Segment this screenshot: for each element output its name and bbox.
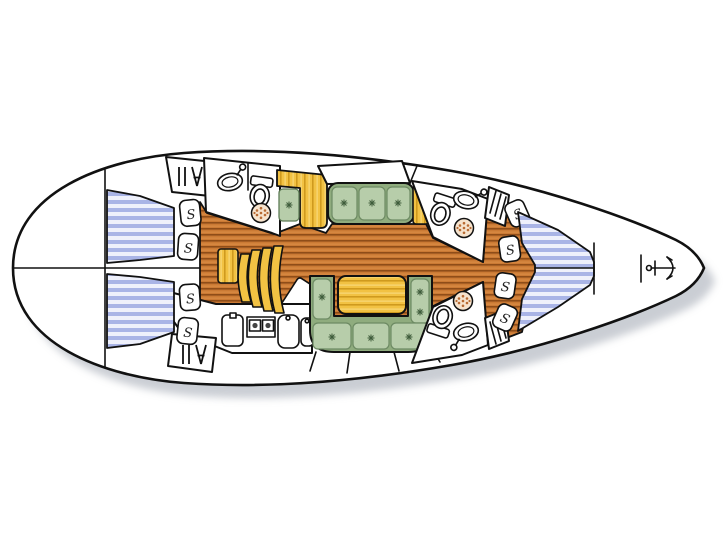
cushion-tuft xyxy=(369,200,376,207)
shelf-locker: S xyxy=(177,233,199,260)
cushion-tuft xyxy=(417,289,424,296)
faucet xyxy=(286,316,290,320)
shelf-locker: S xyxy=(498,235,521,263)
shelf-locker: S xyxy=(176,317,199,345)
shower-drain xyxy=(454,292,473,311)
burner xyxy=(265,323,270,328)
stove xyxy=(247,317,275,337)
svg-text:S: S xyxy=(186,207,197,223)
cushion-tuft xyxy=(329,334,336,341)
cushion-tuft xyxy=(395,200,402,207)
shower-drain xyxy=(455,219,474,238)
svg-text:S: S xyxy=(186,292,196,308)
u-settee xyxy=(310,276,432,352)
fridge-latch xyxy=(230,313,236,318)
settee-back-shelf xyxy=(318,161,410,184)
cushion-tuft xyxy=(319,294,326,301)
yacht-floor-plan: Sailing yacht interior layout plan (bow … xyxy=(0,0,727,544)
cushion-tuft xyxy=(341,200,348,207)
cushion-tuft xyxy=(406,334,413,341)
svg-text:S: S xyxy=(183,241,193,257)
shelf-locker: S xyxy=(494,272,517,300)
settee-cushion xyxy=(411,279,429,323)
floor-plan-canvas: S S S S xyxy=(0,0,727,544)
step-landing xyxy=(218,249,238,283)
shelf-locker: S xyxy=(179,284,201,311)
cushion-tuft xyxy=(286,202,293,209)
shower-drain xyxy=(252,204,271,223)
salon-table xyxy=(338,276,406,314)
cushion-tuft xyxy=(417,309,424,316)
port-settee xyxy=(328,183,429,224)
cushion-tuft xyxy=(368,335,375,342)
shelf-locker: S xyxy=(179,199,202,227)
faucet xyxy=(305,319,309,323)
burner xyxy=(252,323,257,328)
svg-text:S: S xyxy=(183,326,194,342)
galley-sideboard xyxy=(277,170,327,228)
fridge xyxy=(222,315,243,346)
